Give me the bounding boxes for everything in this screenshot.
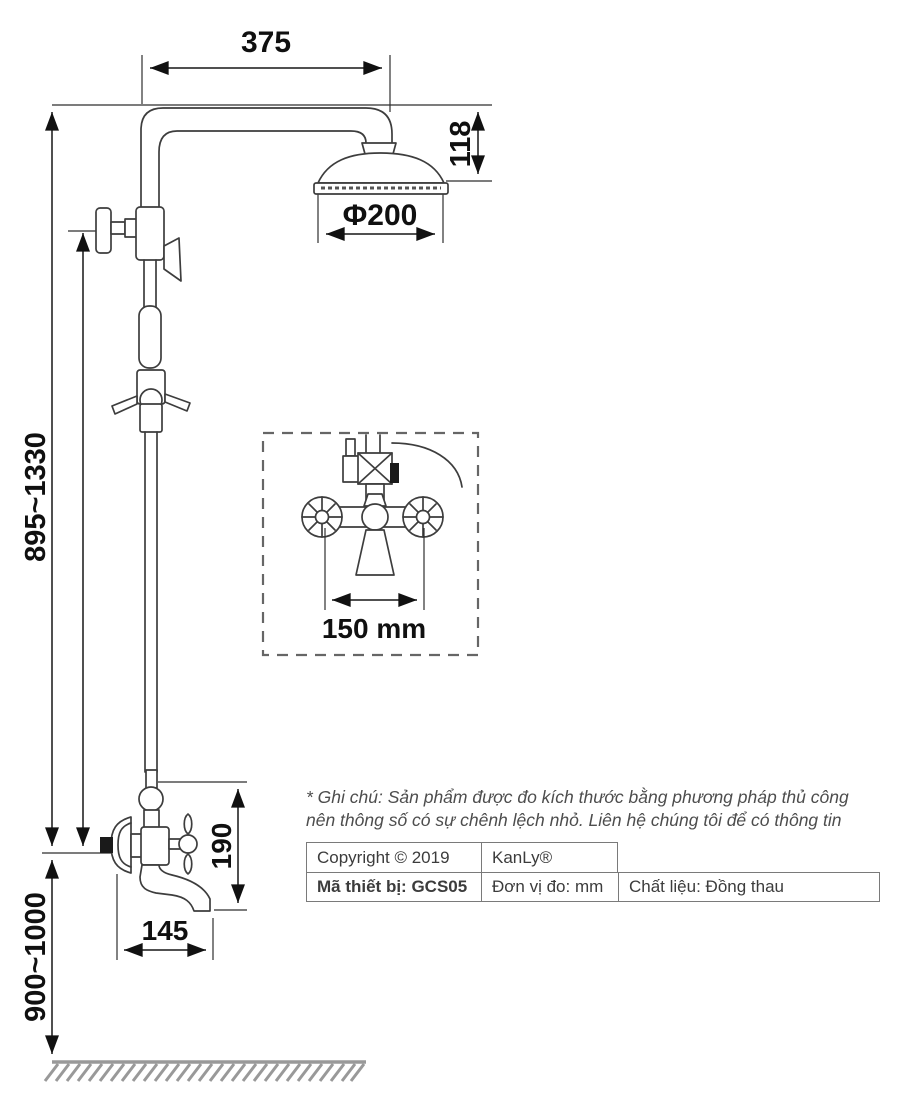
info-table: Copyright © 2019 KanLy® Mã thiết bị: GCS… xyxy=(306,842,880,902)
table-cell-brand: KanLy® xyxy=(481,842,618,872)
dim-spout-drop-label: 190 xyxy=(206,823,237,870)
dim-column-height-label: 895~1330 xyxy=(20,432,52,562)
table-cell-copyright: Copyright © 2019 xyxy=(306,842,481,872)
table-cell-device-code: Mã thiết bị: GCS05 xyxy=(306,872,481,902)
dim-head-diameter-label: Φ200 xyxy=(343,199,418,232)
cross-handle-side xyxy=(169,814,197,874)
wall-inlet xyxy=(100,837,113,853)
dim-arm-width-label: 375 xyxy=(241,26,291,59)
ground-hatch xyxy=(45,1062,366,1081)
diverter xyxy=(139,770,163,828)
mixer-front-view xyxy=(302,435,462,575)
table-cell-unit: Đơn vị đo: mm xyxy=(481,872,618,902)
measurement-note: * Ghi chú: Sản phẩm được đo kích thước b… xyxy=(306,786,896,832)
shower-head xyxy=(314,153,448,194)
technical-drawing: 375 118 Φ200 895~1330 900~1000 190 145 1… xyxy=(0,0,903,1106)
table-cell-material: Chất liệu: Đồng thau xyxy=(618,872,880,902)
slider-bracket xyxy=(96,207,181,281)
table-cell-blank xyxy=(618,842,880,872)
tub-spout xyxy=(140,865,210,911)
dim-valve-distance-label: 150 mm xyxy=(322,613,426,644)
dim-spout-reach-label: 145 xyxy=(142,915,189,946)
dim-head-height-label: 118 xyxy=(445,121,477,168)
dim-mount-height-label: 900~1000 xyxy=(20,892,52,1022)
note-line-1: * Ghi chú: Sản phẩm được đo kích thước b… xyxy=(306,786,896,809)
dimension-diagram-page: 375 118 Φ200 895~1330 900~1000 190 145 1… xyxy=(0,0,903,1106)
telescopic-pipe xyxy=(112,260,190,772)
note-line-2: nên thông số có sự chênh lệch nhỏ. Liên … xyxy=(306,809,896,832)
